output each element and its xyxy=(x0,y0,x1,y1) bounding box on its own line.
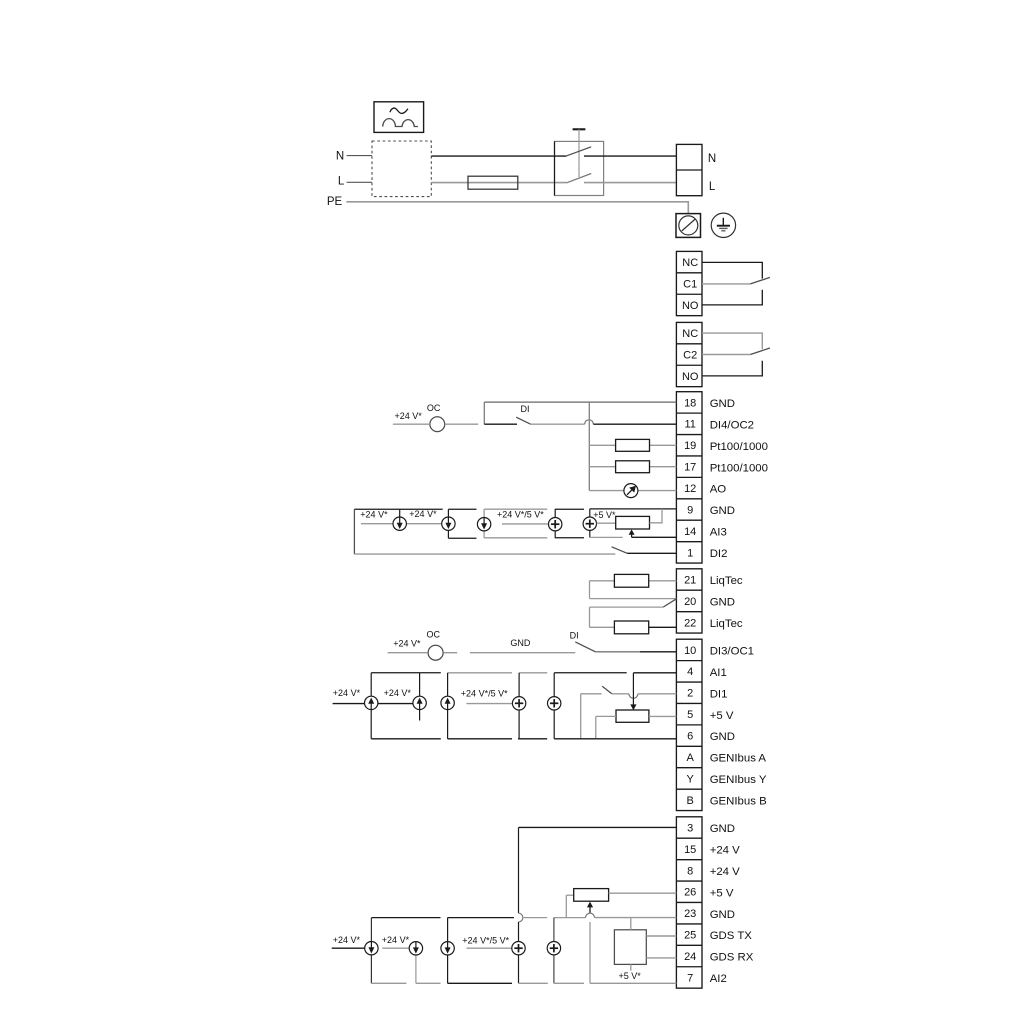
svg-text:NO: NO xyxy=(682,371,699,383)
svg-text:5: 5 xyxy=(687,709,693,721)
svg-text:C2: C2 xyxy=(683,349,697,361)
svg-text:NO: NO xyxy=(682,300,699,312)
svg-text:GND: GND xyxy=(710,597,735,609)
svg-text:3: 3 xyxy=(687,822,693,834)
svg-text:OC: OC xyxy=(427,630,441,640)
svg-text:L: L xyxy=(709,181,716,193)
svg-text:B: B xyxy=(687,795,694,807)
svg-text:19: 19 xyxy=(684,440,696,452)
svg-text:PE: PE xyxy=(327,196,343,208)
svg-text:AI1: AI1 xyxy=(710,667,727,679)
svg-text:GENIbus A: GENIbus A xyxy=(710,753,767,765)
svg-text:GDS TX: GDS TX xyxy=(710,930,753,942)
svg-text:+5 V*: +5 V* xyxy=(593,510,616,520)
svg-text:LiqTec: LiqTec xyxy=(710,575,743,587)
svg-text:AI3: AI3 xyxy=(710,527,727,539)
svg-text:+24 V*: +24 V* xyxy=(333,935,361,945)
svg-text:23: 23 xyxy=(684,908,696,920)
svg-text:N: N xyxy=(708,153,716,165)
svg-text:4: 4 xyxy=(687,666,693,678)
svg-text:11: 11 xyxy=(684,419,695,431)
svg-text:+24 V*: +24 V* xyxy=(384,688,412,698)
svg-text:+5 V: +5 V xyxy=(710,710,734,722)
svg-text:AO: AO xyxy=(710,484,727,496)
svg-text:Pt100/1000: Pt100/1000 xyxy=(710,462,768,474)
svg-text:LiqTec: LiqTec xyxy=(710,618,743,630)
svg-text:GND: GND xyxy=(710,731,735,743)
svg-text:Pt100/1000: Pt100/1000 xyxy=(710,441,768,453)
svg-text:15: 15 xyxy=(684,844,696,856)
svg-text:GND: GND xyxy=(710,823,735,835)
svg-text:24: 24 xyxy=(684,951,696,963)
svg-text:25: 25 xyxy=(684,930,696,942)
svg-text:N: N xyxy=(336,151,344,163)
svg-text:+24 V*/5 V*: +24 V*/5 V* xyxy=(462,935,509,945)
svg-text:1: 1 xyxy=(687,547,693,559)
svg-text:10: 10 xyxy=(684,645,696,657)
svg-text:DI2: DI2 xyxy=(710,548,728,560)
svg-text:DI1: DI1 xyxy=(710,688,728,700)
svg-text:21: 21 xyxy=(684,574,696,586)
svg-text:7: 7 xyxy=(687,972,693,984)
svg-text:+24 V*: +24 V* xyxy=(382,935,410,945)
svg-text:NC: NC xyxy=(682,257,698,269)
svg-text:18: 18 xyxy=(684,397,696,409)
svg-text:+24 V*: +24 V* xyxy=(333,688,361,698)
svg-text:AI2: AI2 xyxy=(710,973,727,985)
svg-text:+24 V*/5 V*: +24 V*/5 V* xyxy=(497,510,544,520)
svg-text:12: 12 xyxy=(684,483,696,495)
svg-text:DI: DI xyxy=(570,630,579,640)
svg-text:+24 V*/5 V*: +24 V*/5 V* xyxy=(461,689,508,699)
svg-text:OC: OC xyxy=(427,403,441,413)
svg-text:GND: GND xyxy=(710,909,735,921)
svg-text:GDS RX: GDS RX xyxy=(710,952,754,964)
svg-text:+24 V*: +24 V* xyxy=(393,638,421,648)
svg-text:8: 8 xyxy=(687,865,693,877)
svg-text:L: L xyxy=(338,176,345,188)
svg-text:9: 9 xyxy=(687,504,693,516)
svg-text:GENIbus B: GENIbus B xyxy=(710,795,767,807)
svg-text:17: 17 xyxy=(684,462,696,474)
svg-text:GND: GND xyxy=(710,398,735,410)
svg-text:+24 V*: +24 V* xyxy=(360,510,388,520)
svg-text:DI4/OC2: DI4/OC2 xyxy=(710,419,754,431)
svg-text:GENIbus Y: GENIbus Y xyxy=(710,774,767,786)
svg-text:DI: DI xyxy=(521,404,530,414)
svg-text:2: 2 xyxy=(687,688,693,700)
svg-text:GND: GND xyxy=(510,638,531,648)
svg-text:+24 V: +24 V xyxy=(710,866,740,878)
svg-text:+24 V*: +24 V* xyxy=(395,411,423,421)
svg-text:+5 V*: +5 V* xyxy=(619,971,642,981)
svg-text:Y: Y xyxy=(687,773,695,785)
svg-text:C1: C1 xyxy=(683,278,697,290)
svg-text:+5 V: +5 V xyxy=(710,887,734,899)
svg-text:+24 V*: +24 V* xyxy=(409,509,437,519)
svg-text:6: 6 xyxy=(687,730,693,742)
svg-text:A: A xyxy=(687,752,695,764)
svg-text:NC: NC xyxy=(682,328,698,340)
svg-text:14: 14 xyxy=(684,526,696,538)
svg-text:+24 V: +24 V xyxy=(710,845,740,857)
svg-text:GND: GND xyxy=(710,505,735,517)
svg-text:22: 22 xyxy=(684,617,696,629)
svg-text:20: 20 xyxy=(684,596,696,608)
svg-text:DI3/OC1: DI3/OC1 xyxy=(710,646,754,658)
svg-text:26: 26 xyxy=(684,887,696,899)
